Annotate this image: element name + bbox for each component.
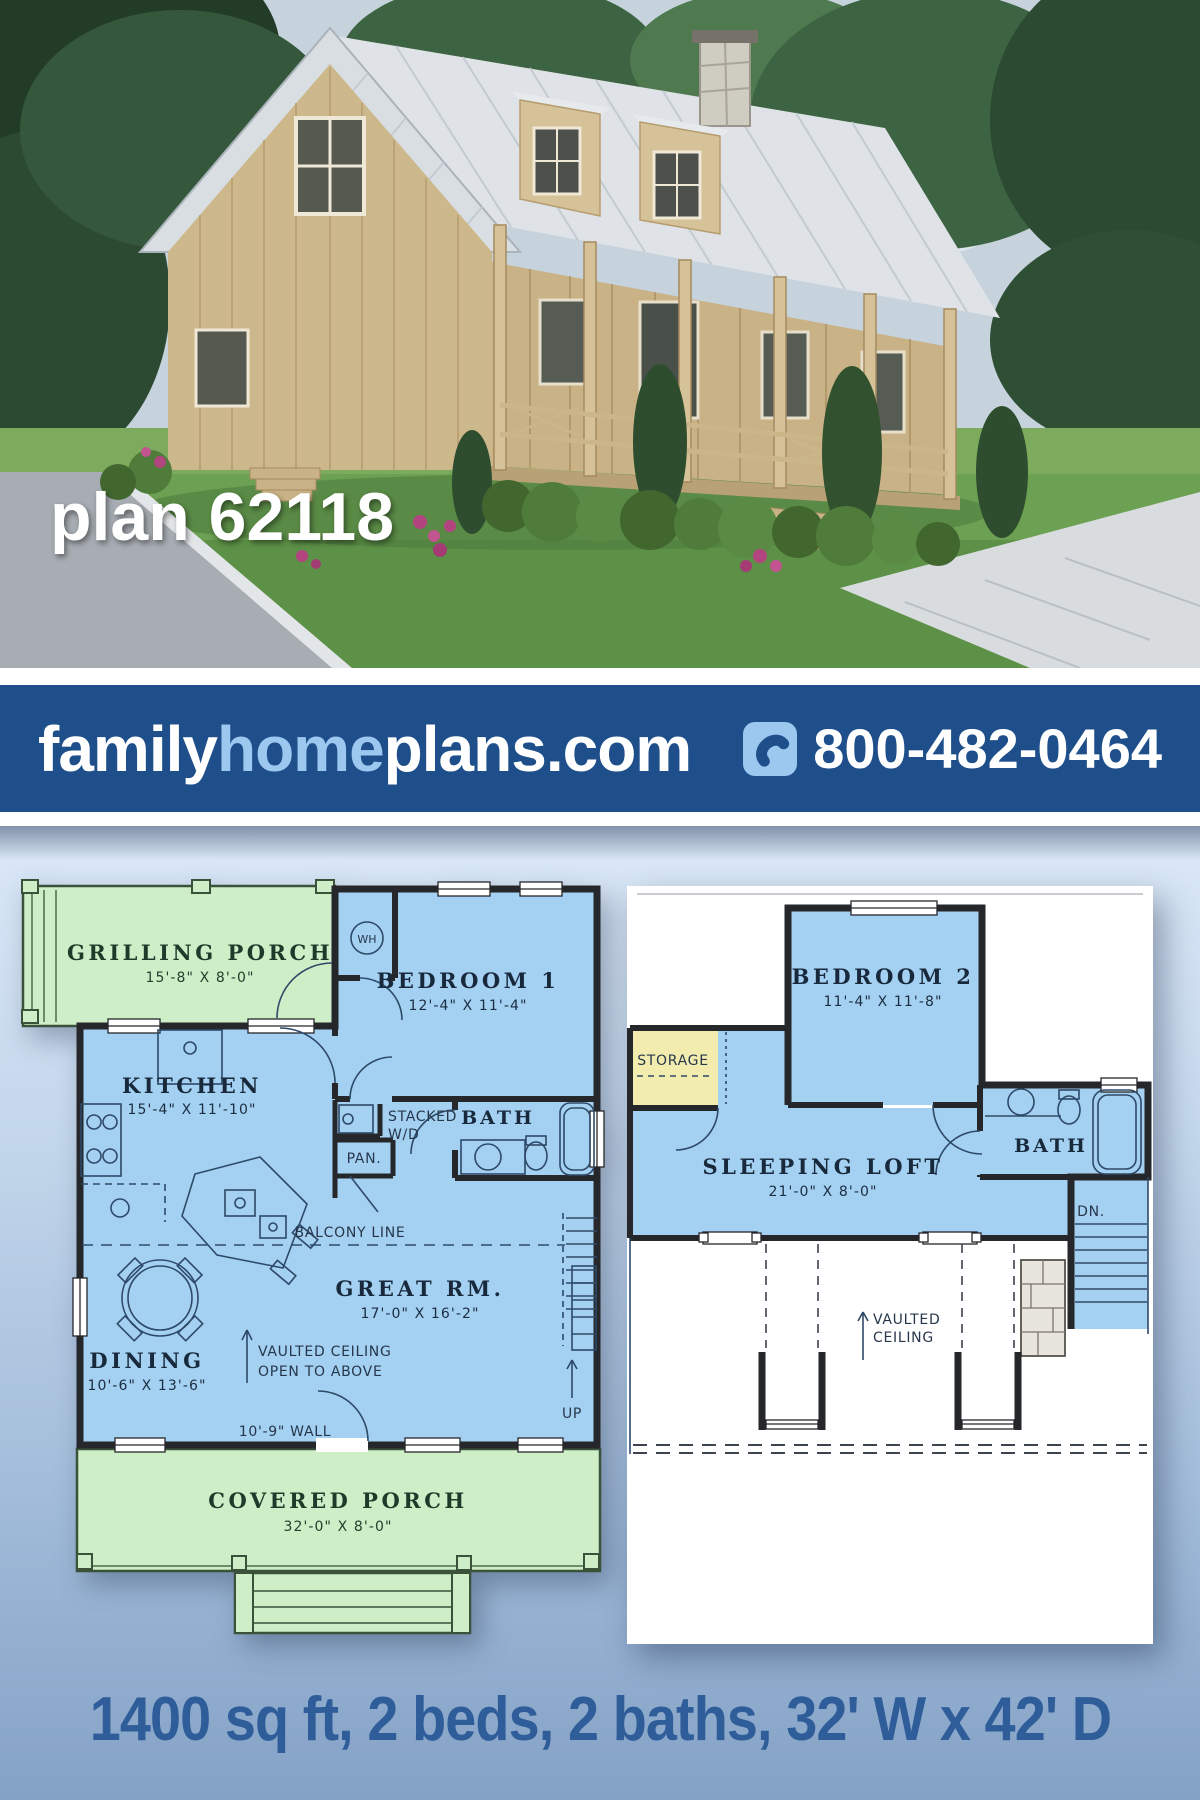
pin-image: plan 62118 familyhomeplans.com 800-482-0… <box>0 0 1200 1800</box>
house-illustration <box>0 0 1200 668</box>
vaulted2-label2: CEILING <box>873 1330 934 1346</box>
porch-steps <box>235 1573 470 1633</box>
brand-family: family <box>38 713 217 785</box>
side-window <box>196 330 248 406</box>
brand-home: home <box>217 713 384 785</box>
brand-plans: plans.com <box>384 713 692 785</box>
phone-block: 800-482-0464 <box>743 716 1162 781</box>
covered-porch-label: COVERED PORCH <box>208 1488 468 1513</box>
dining-label: DINING <box>89 1348 204 1373</box>
balcony-label: BALCONY LINE <box>295 1225 406 1241</box>
bedroom2-label: BEDROOM 2 <box>792 964 975 989</box>
great-room-label: GREAT RM. <box>336 1276 505 1301</box>
grilling-porch-label: GRILLING PORCH <box>67 940 333 965</box>
down-label: DN. <box>1077 1204 1105 1220</box>
loft-label: SLEEPING LOFT <box>702 1154 943 1179</box>
floor-plans-section: WH <box>0 826 1200 1800</box>
covered-porch-dims: 32'-0" X 8'-0" <box>283 1519 392 1535</box>
pantry-label: PAN. <box>347 1151 382 1167</box>
loft-dims: 21'-0" X 8'-0" <box>768 1184 877 1200</box>
kitchen-dims: 15'-4" X 11'-10" <box>127 1102 256 1118</box>
house-photo: plan 62118 <box>0 0 1200 668</box>
vaulted2-label1: VAULTED <box>873 1312 940 1328</box>
dormer <box>632 114 730 234</box>
bath1-label: BATH <box>461 1107 535 1129</box>
vaulted-label1: VAULTED CEILING <box>258 1344 392 1360</box>
phone-icon <box>743 722 797 776</box>
vaulted-label2: OPEN TO ABOVE <box>258 1364 382 1380</box>
wall-note: 10'-9" WALL <box>239 1424 331 1440</box>
brand-logo: familyhomeplans.com <box>38 712 691 786</box>
bath2-label: BATH <box>1014 1135 1088 1157</box>
storage-label: STORAGE <box>637 1053 709 1069</box>
grilling-porch-dims: 15'-8" X 8'-0" <box>145 970 254 986</box>
chimney-plan <box>1021 1260 1065 1356</box>
spec-text: 1400 sq ft, 2 beds, 2 baths, 32' W x 42'… <box>89 1684 1110 1755</box>
wh-label: WH <box>357 933 376 946</box>
dining-dims: 10'-6" X 13'-6" <box>87 1378 206 1394</box>
dormer <box>512 92 610 216</box>
stacked-wd-label2: W/D <box>388 1127 419 1143</box>
great-room-dims: 17'-0" X 16'-2" <box>360 1306 479 1322</box>
bedroom1-dims: 12'-4" X 11'-4" <box>408 998 527 1014</box>
chimney <box>692 30 758 126</box>
up-label: UP <box>562 1406 582 1422</box>
phone-number: 800-482-0464 <box>813 716 1162 781</box>
second-floor-plan: BEDROOM 2 11'-4" X 11'-8" STORAGE SLEEPI… <box>623 884 1157 1664</box>
porch-window <box>540 300 586 384</box>
bedroom1-label: BEDROOM 1 <box>377 968 560 993</box>
kitchen-label: KITCHEN <box>122 1073 262 1098</box>
plan-number-overlay: plan 62118 <box>50 478 394 556</box>
bedroom2-dims: 11'-4" X 11'-8" <box>823 994 942 1010</box>
spec-caption: 1400 sq ft, 2 beds, 2 baths, 32' W x 42'… <box>0 1684 1200 1755</box>
brand-banner: familyhomeplans.com 800-482-0464 <box>0 685 1200 812</box>
first-floor-plan: WH <box>20 878 608 1650</box>
stacked-wd-label: STACKED <box>388 1109 457 1125</box>
